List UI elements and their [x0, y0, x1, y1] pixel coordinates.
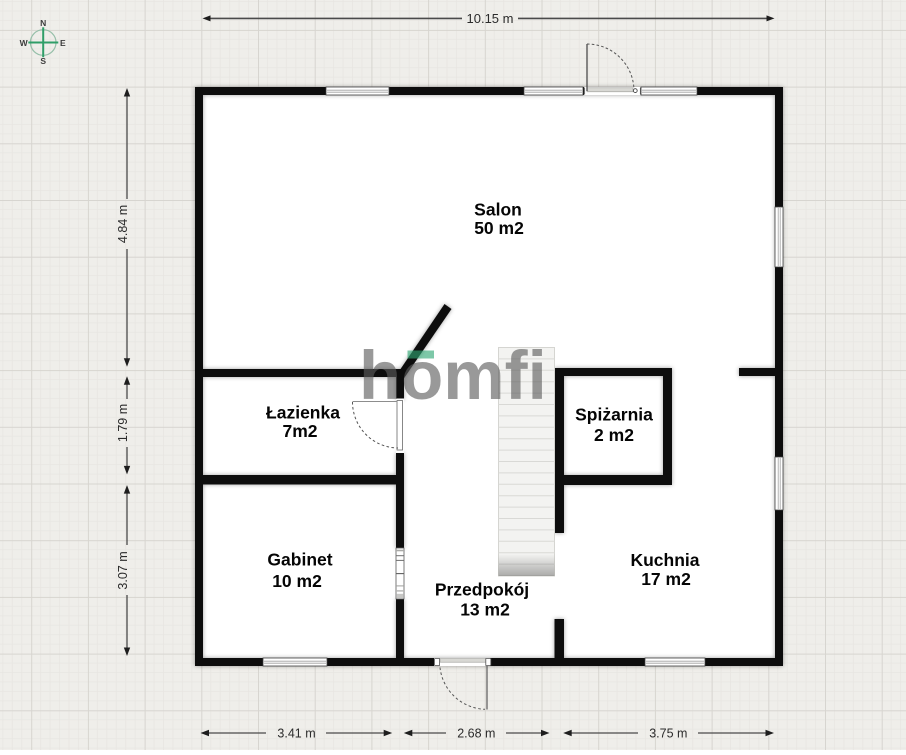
svg-text:4.84 m: 4.84 m: [116, 205, 130, 243]
svg-text:10 m2: 10 m2: [272, 571, 322, 591]
svg-text:Przedpokój: Przedpokój: [435, 580, 529, 600]
svg-text:1.79 m: 1.79 m: [116, 404, 130, 442]
svg-text:Gabinet: Gabinet: [267, 550, 332, 570]
svg-text:W: W: [20, 38, 29, 48]
svg-text:Łazienka: Łazienka: [266, 403, 340, 423]
svg-text:Salon: Salon: [474, 200, 522, 220]
svg-text:Kuchnia: Kuchnia: [630, 550, 699, 570]
svg-text:3.41 m: 3.41 m: [277, 727, 315, 741]
svg-text:Spiżarnia: Spiżarnia: [575, 405, 653, 425]
svg-text:10.15 m: 10.15 m: [467, 11, 514, 26]
svg-text:E: E: [60, 38, 66, 48]
svg-text:7m2: 7m2: [282, 421, 317, 441]
svg-text:2.68 m: 2.68 m: [457, 727, 495, 741]
svg-text:50 m2: 50 m2: [474, 218, 524, 238]
svg-text:3.07 m: 3.07 m: [116, 551, 130, 589]
svg-text:homfi: homfi: [359, 337, 547, 414]
svg-text:N: N: [40, 18, 46, 28]
svg-text:S: S: [40, 56, 46, 66]
svg-text:3.75 m: 3.75 m: [649, 727, 687, 741]
svg-text:13 m2: 13 m2: [460, 600, 510, 620]
svg-text:2 m2: 2 m2: [594, 425, 634, 445]
svg-text:17 m2: 17 m2: [641, 569, 691, 589]
